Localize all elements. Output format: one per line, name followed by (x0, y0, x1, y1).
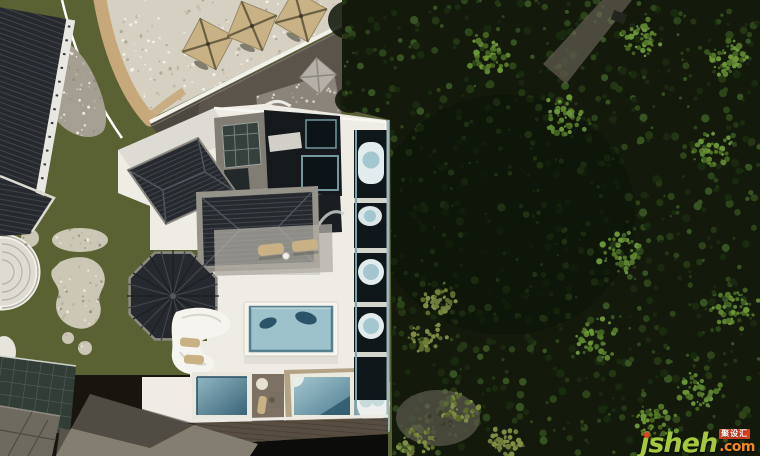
watermark-badge: 聚设汇 (719, 429, 750, 439)
watermark-tld: .com (719, 440, 755, 454)
aerial-photo: jsheh 聚设汇 .com (0, 0, 760, 456)
watermark: jsheh 聚设汇 .com (640, 429, 755, 454)
sun-lounger (257, 243, 284, 261)
forest-dark-patch (375, 95, 635, 335)
sun-lounger (291, 239, 318, 257)
watermark-brand: jsheh (640, 433, 717, 454)
forest-canopy (333, 0, 760, 456)
watermark-brand-text: jsheh (640, 428, 717, 456)
sun-lounger (180, 337, 201, 348)
watermark-suffix: 聚设汇 .com (719, 429, 755, 454)
scene-canvas (0, 0, 760, 456)
side-table (283, 253, 290, 260)
rooftop-tub-rooms (354, 120, 388, 432)
plunge-pool-left (192, 372, 252, 420)
watermark-j-dot-accent (644, 432, 650, 438)
skylight (222, 122, 261, 168)
roof-terrace (214, 224, 333, 276)
sun-lounger (184, 354, 204, 364)
main-pool (244, 302, 338, 364)
sunken-patio (252, 374, 284, 422)
